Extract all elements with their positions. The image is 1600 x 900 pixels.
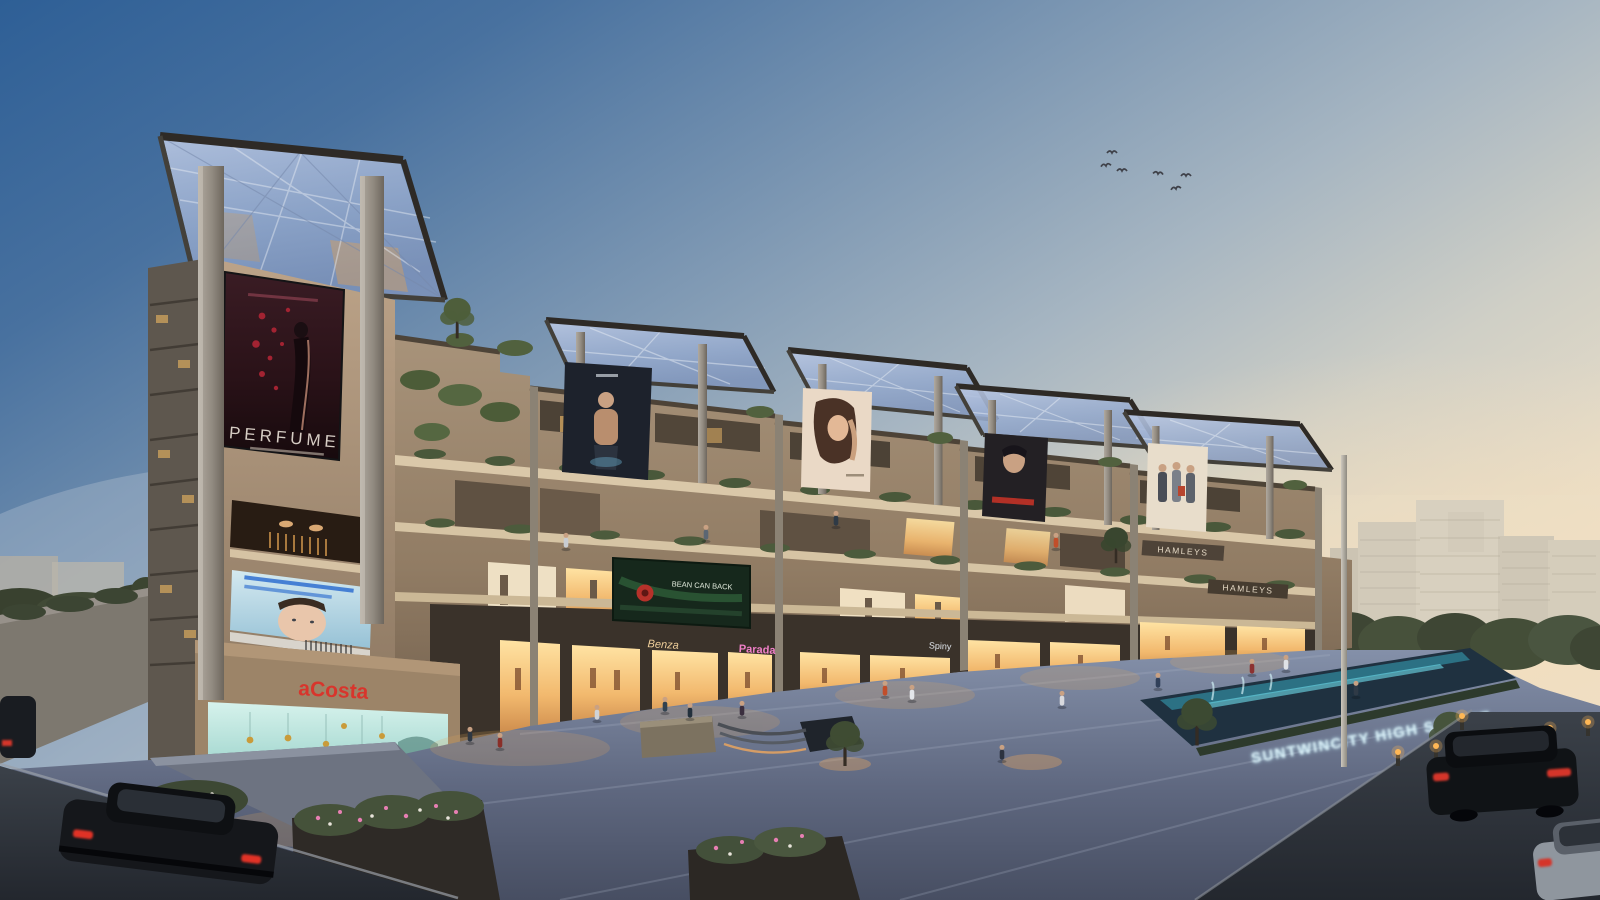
billboard-man-dark — [562, 362, 652, 480]
car-left-edge — [0, 696, 36, 758]
scene-canvas: Dusk architectural rendering of a steppe… — [0, 0, 1600, 900]
center-planters — [688, 827, 860, 900]
background-city — [1314, 495, 1600, 670]
billboard-man-red-text — [982, 433, 1048, 522]
spiny-sign: Spiny — [929, 640, 953, 651]
perfume-billboard: PERFUME — [222, 272, 344, 460]
mall-rendering-scene: Dusk architectural rendering of a steppe… — [0, 0, 1600, 900]
green-led-billboard: BEAN CAN BACK — [613, 558, 750, 628]
acosta-sign: aCosta — [298, 677, 369, 704]
billboard-three-men — [1146, 443, 1208, 532]
benza-sign: Benza — [647, 638, 679, 652]
street-light-pole — [1341, 455, 1347, 767]
car-right-suv — [1424, 724, 1580, 826]
billboard-woman-beauty — [801, 388, 872, 492]
parada-sign: Parada — [739, 643, 777, 657]
